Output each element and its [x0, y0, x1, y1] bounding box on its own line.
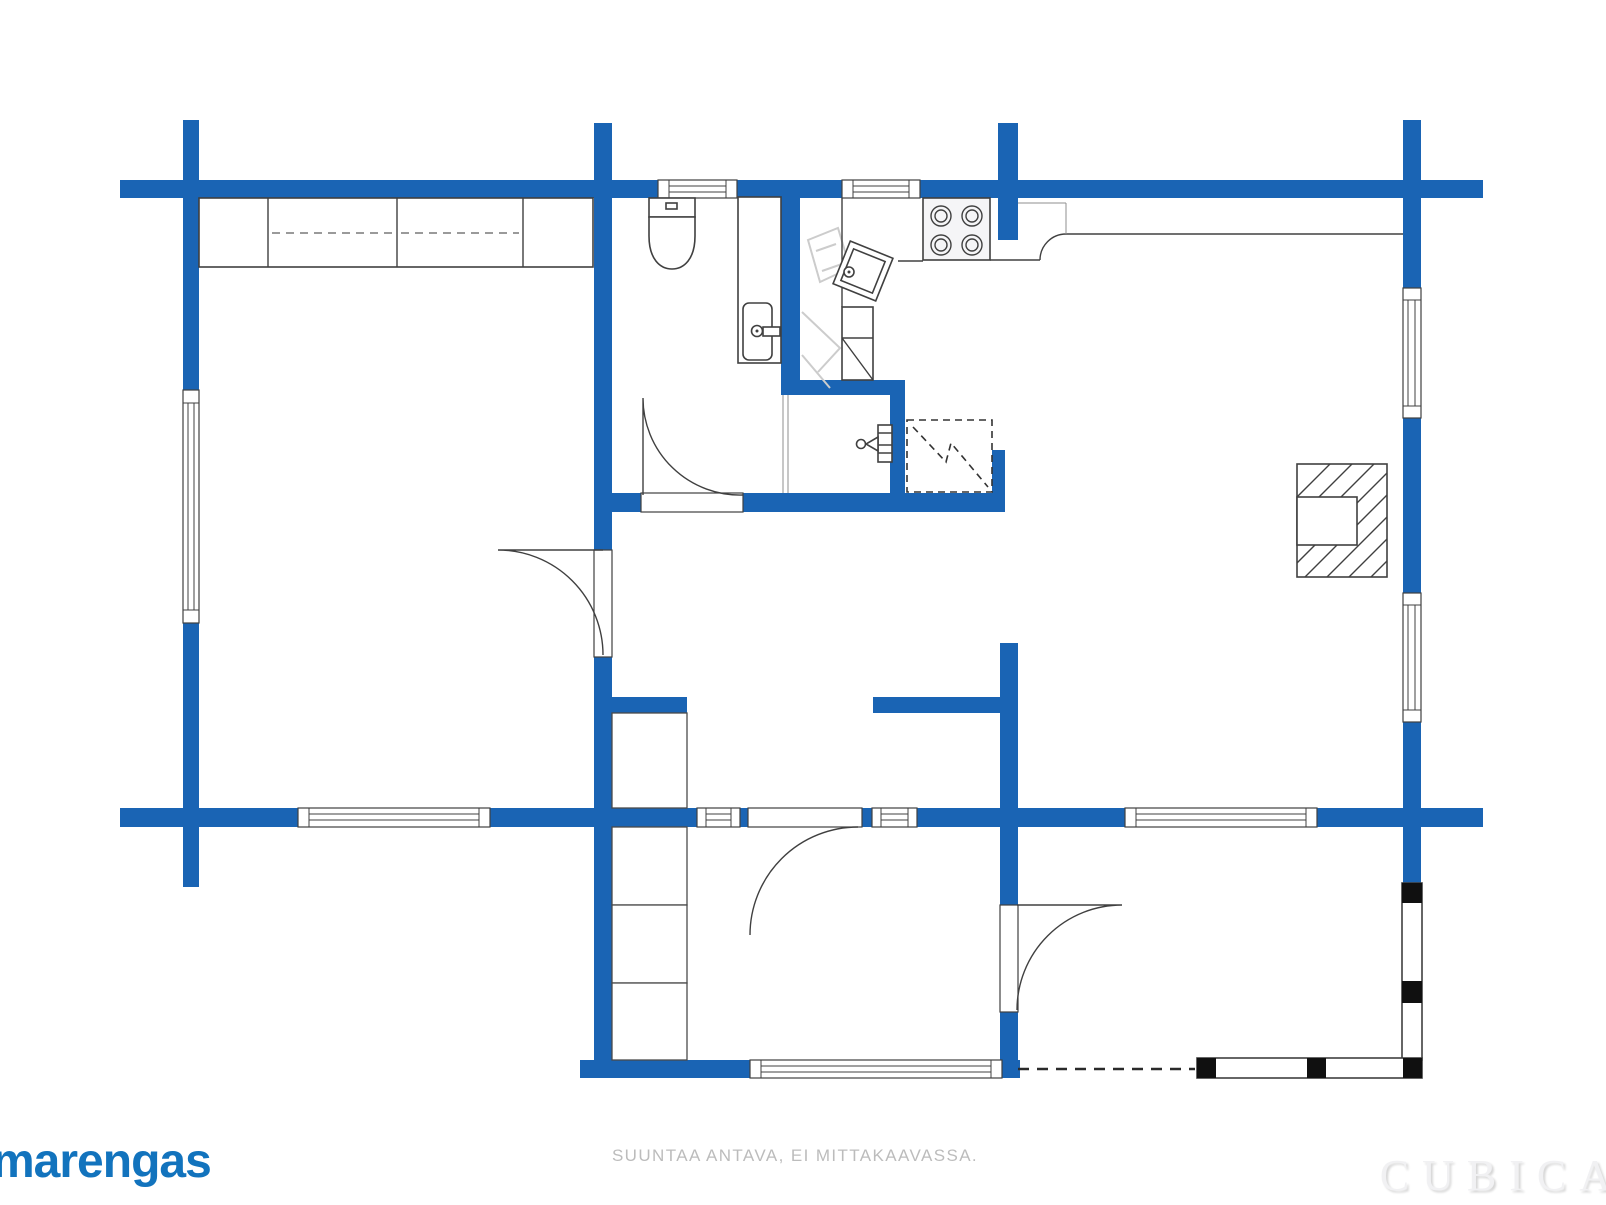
window-hall-bottom-1	[697, 808, 740, 827]
wall-segment-kitchen-entry	[992, 450, 1005, 500]
terrace-post	[1197, 1058, 1216, 1078]
toilet	[649, 198, 695, 269]
bathroom-fixtures	[649, 197, 781, 363]
pantry-wall-thin	[783, 395, 788, 493]
fireplace-opening	[1297, 497, 1357, 545]
closets	[612, 713, 687, 1060]
window-living-right-lower	[1403, 593, 1421, 722]
door-bathroom	[641, 398, 743, 512]
disclaimer-text: SUUNTAA ANTAVA, EI MITTAKAAVASSA.	[0, 1146, 1590, 1166]
door-bottom-bedroom	[748, 808, 862, 935]
watermark-cubica: CUBICA	[1380, 1150, 1606, 1201]
wall-right	[1403, 120, 1421, 883]
window-hall-bottom-2	[872, 808, 917, 827]
window-bedroom-bottom	[298, 808, 490, 827]
doors	[498, 398, 1122, 1012]
closet-hall	[612, 713, 687, 808]
wall-stub-right	[873, 697, 1018, 713]
wall-stub-left	[612, 697, 687, 713]
terrace-post	[1402, 981, 1422, 1003]
wardrobe-row	[199, 198, 593, 267]
floor-plan-page: { "branding": { "logo_text": "marengas" …	[0, 0, 1606, 1205]
window-kitchen-top	[842, 180, 920, 198]
terrace-rail-right	[1402, 883, 1422, 1060]
floor-plan-drawing	[0, 0, 1606, 1205]
closet-extension-3	[612, 983, 687, 1060]
window-living-right-upper	[1403, 288, 1421, 418]
corner-cabinet	[842, 307, 873, 380]
wall-top	[120, 180, 1483, 198]
door-bedroom-left	[498, 550, 612, 657]
windows	[183, 180, 1421, 1078]
kitchen-fixtures	[898, 198, 1403, 492]
window-bedroom-left	[183, 390, 199, 623]
washbasin-cabinet	[738, 197, 781, 363]
bedroom-left-fixtures	[199, 198, 593, 267]
closet-extension-1	[612, 827, 687, 905]
terrace-post	[1307, 1058, 1326, 1078]
terrace-post	[1403, 1058, 1422, 1078]
utility-room	[802, 198, 893, 388]
wall-pantry-top	[797, 380, 905, 395]
window-extension-bottom	[750, 1060, 1002, 1078]
stove-4-burner	[923, 198, 990, 260]
wall-bathroom-right	[781, 198, 800, 395]
fireplace	[1194, 440, 1508, 600]
wall-kitchen-stub	[998, 123, 1018, 240]
appliance-reservation-dashed	[907, 420, 992, 492]
pantry	[783, 395, 892, 493]
window-living-bottom	[1125, 808, 1317, 827]
closet-extension-2	[612, 905, 687, 983]
terrace	[1018, 883, 1422, 1078]
water-tap-valve	[857, 425, 893, 462]
window-bathroom-top	[658, 180, 737, 198]
door-terrace	[1000, 905, 1122, 1012]
terrace-post	[1402, 883, 1422, 903]
